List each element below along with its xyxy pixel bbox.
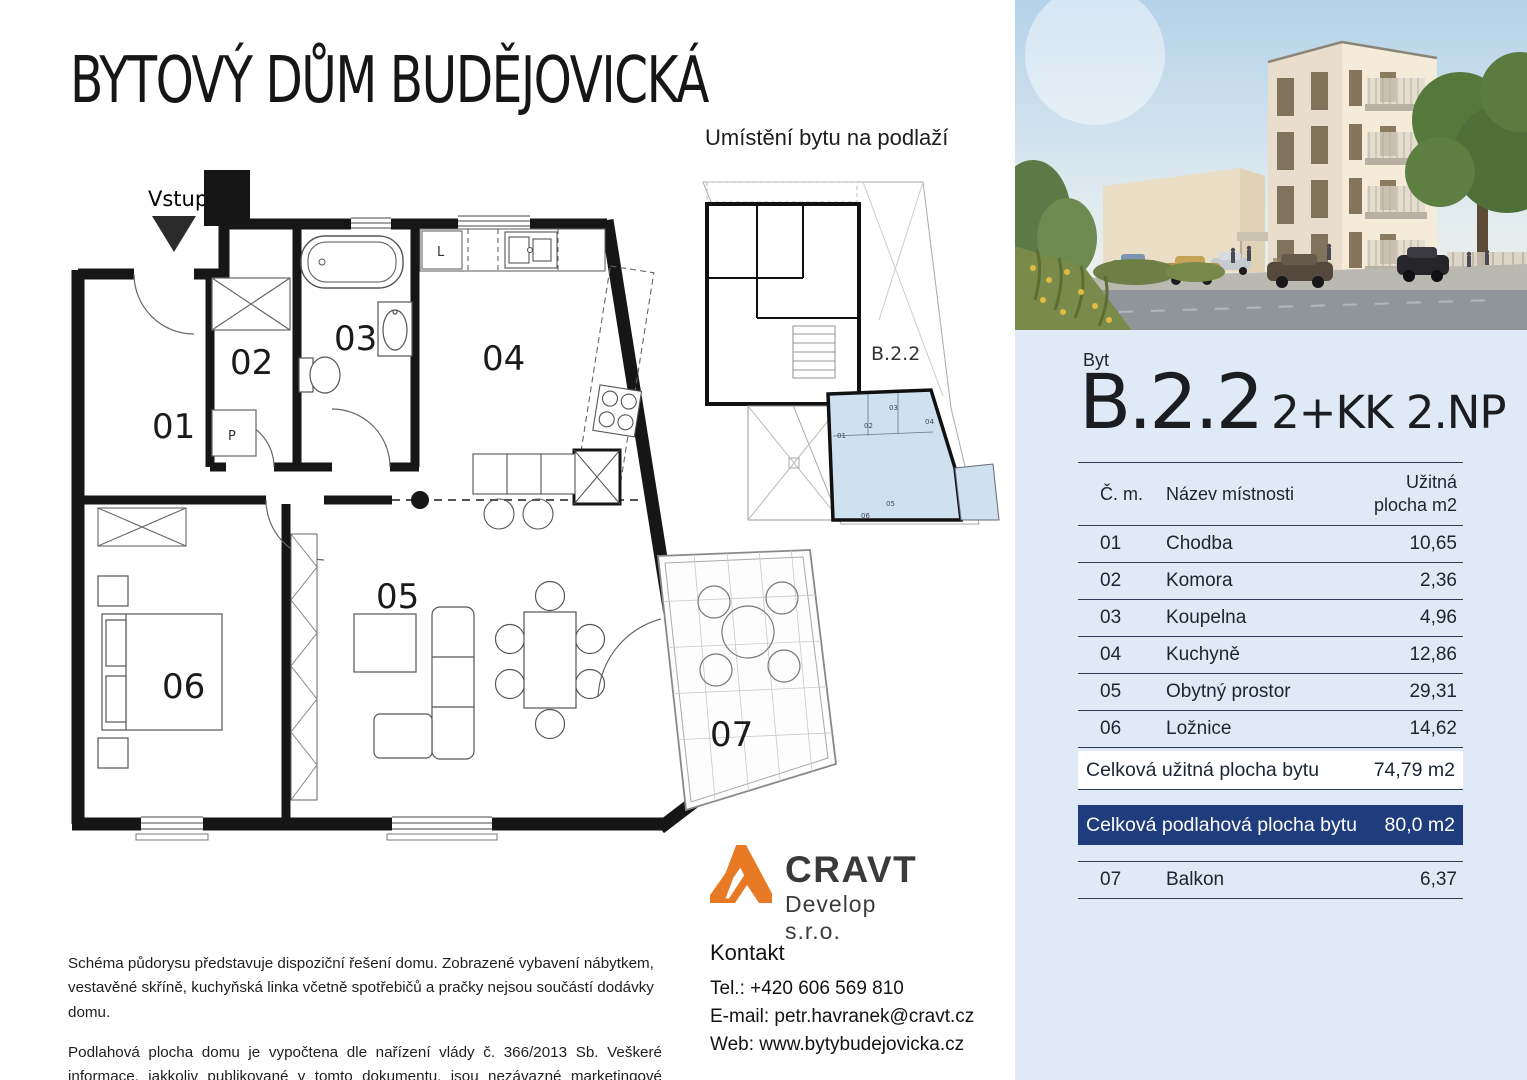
kitchen-sink (505, 232, 557, 268)
room-label-03: 03 (334, 319, 377, 359)
location-caption: Umístění bytu na podlaží (705, 125, 948, 151)
room-label-05: 05 (376, 577, 419, 617)
bathtub (301, 236, 403, 288)
highlighted-unit: 03 02 01 04 05 06 (828, 390, 999, 520)
room-label-07: 07 (710, 715, 753, 755)
brand-subtitle: Develop s.r.o. (785, 891, 917, 945)
washbasin (378, 302, 412, 356)
storage-closet (212, 278, 290, 330)
total-floor-row: Celková podlahová plocha bytu 80,0 m2 (1078, 805, 1463, 845)
contact-block: Kontakt Tel.: +420 606 569 810 E-mail: p… (710, 940, 974, 1062)
contact-web: Web: www.bytybudejovicka.cz (710, 1034, 974, 1056)
unit-spec: 2+KK 2.NP (1271, 386, 1505, 439)
shaft-box (574, 450, 620, 504)
room-label-06: 06 (162, 667, 205, 707)
table-row: 01 Chodba 10,65 (1078, 526, 1463, 563)
shaft (204, 170, 250, 226)
unit-panel: Byt B.2.2 2+KK 2.NP Č. m. Název místnost… (1015, 330, 1527, 1080)
svg-text:06: 06 (861, 512, 870, 520)
building-photo (1015, 0, 1527, 330)
table-row: 03 Koupelna 4,96 (1078, 600, 1463, 637)
rooms-table: Č. m. Název místnosti Užitná plocha m2 0… (1078, 462, 1463, 899)
side-table (354, 614, 416, 672)
disclaimer-p1: Schéma půdorysu představuje dispoziční ř… (68, 952, 662, 1025)
entry-label: Vstup (148, 187, 208, 211)
page-title: BYTOVÝ DŮM BUDĚJOVICKÁ (70, 44, 708, 118)
wardrobe-strip (291, 534, 317, 800)
toilet (299, 357, 340, 393)
room-label-04: 04 (482, 339, 525, 379)
total-usable-row: Celková užitná plocha bytu 74,79 m2 (1078, 751, 1463, 790)
dining-set (496, 582, 605, 739)
unit-heading: B.2.2 2+KK 2.NP (1079, 356, 1506, 447)
room-label-02: 02 (230, 343, 273, 383)
table-row: 06 Ložnice 14,62 (1078, 711, 1463, 748)
column (411, 491, 429, 509)
mini-unit-label: B.2.2 (871, 343, 920, 365)
kitchen-peninsula (473, 454, 575, 529)
brand-name: CRAVT (785, 851, 917, 888)
svg-text:01: 01 (837, 432, 846, 440)
disclaimer: Schéma půdorysu představuje dispoziční ř… (68, 952, 662, 1080)
roof-terrace (748, 406, 840, 520)
svg-text:04: 04 (925, 418, 934, 426)
contact-tel: Tel.: +420 606 569 810 (710, 978, 974, 1000)
bedroom-closet (98, 508, 186, 546)
table-row: 04 Kuchyně 12,86 (1078, 637, 1463, 674)
cravt-logo-icon (710, 845, 772, 903)
washer-label: P (228, 429, 236, 444)
svg-text:05: 05 (886, 500, 895, 508)
fridge-label: L (437, 245, 445, 260)
entry-arrow-icon (152, 216, 196, 252)
svg-text:02: 02 (864, 422, 873, 430)
contact-heading: Kontakt (710, 940, 974, 966)
room-label-01: 01 (152, 407, 195, 447)
brand-block: CRAVT Develop s.r.o. (710, 845, 772, 908)
balcony-row: 07 Balkon 6,37 (1078, 861, 1463, 899)
unit-code: B.2.2 (1079, 356, 1261, 447)
table-row: 02 Komora 2,36 (1078, 563, 1463, 600)
location-mini-plan: 03 02 01 04 05 06 B.2.2 (693, 168, 1003, 538)
disclaimer-p2: Podlahová plocha domu je vypočtena dle n… (68, 1041, 662, 1080)
contact-email: E-mail: petr.havranek@cravt.cz (710, 1006, 974, 1028)
table-row: 05 Obytný prostor 29,31 (1078, 674, 1463, 711)
col-area: Užitná plocha m2 (1367, 471, 1463, 517)
brochure-page: BYTOVÝ DŮM BUDĚJOVICKÁ Vstup (0, 0, 1527, 1080)
balcony (653, 536, 852, 812)
stove (593, 385, 642, 437)
floor-building (707, 204, 859, 404)
col-name: Název místnosti (1166, 484, 1367, 505)
svg-text:03: 03 (889, 404, 898, 412)
table-header: Č. m. Název místnosti Užitná plocha m2 (1078, 462, 1463, 526)
col-number: Č. m. (1078, 484, 1166, 505)
